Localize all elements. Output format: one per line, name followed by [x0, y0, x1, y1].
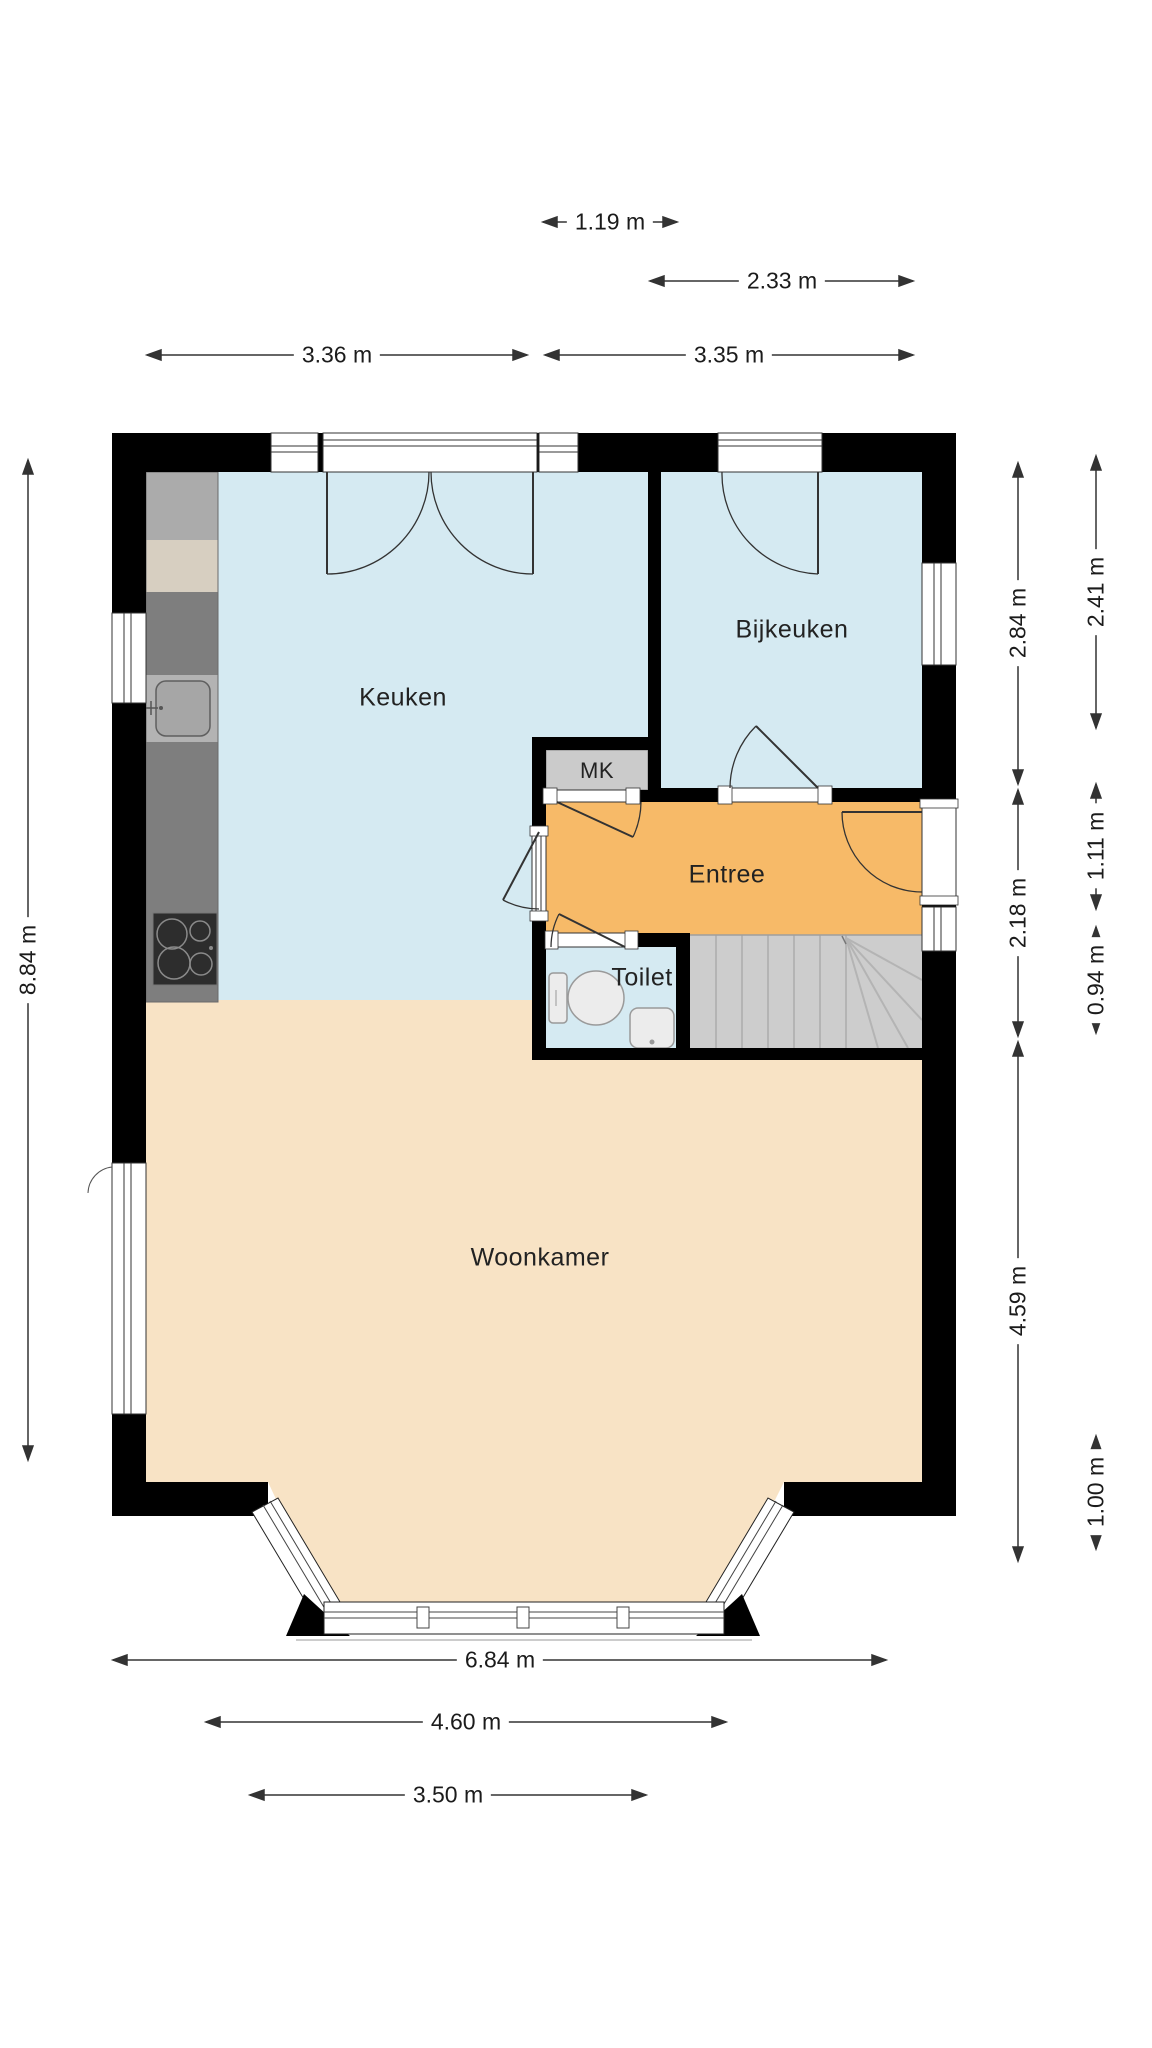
room-label-mk: MK — [580, 758, 614, 784]
floorplan-canvas: Keuken Bijkeuken MK Entree Toilet Woonka… — [0, 0, 1152, 2048]
dim-right-woonkamer: 4.59 m — [1005, 1258, 1032, 1344]
room-label-entree: Entree — [689, 861, 766, 890]
dim-top-bijkeuken: 3.35 m — [686, 342, 772, 369]
floorplan-drawing — [0, 0, 1152, 2048]
kitchen-counter — [144, 472, 218, 1002]
wall-toilet-stairs — [676, 933, 690, 1060]
wall-bay-stub-left — [112, 1482, 268, 1516]
room-label-woonkamer: Woonkamer — [471, 1244, 610, 1273]
dim-right-bay: 1.00 m — [1083, 1449, 1110, 1535]
room-label-keuken: Keuken — [359, 684, 447, 713]
wall-bay-stub-right — [784, 1482, 956, 1516]
window-top-left — [271, 433, 318, 472]
wall-bottom-hall — [532, 1048, 956, 1060]
wall-mk-top — [532, 737, 648, 750]
room-label-toilet: Toilet — [611, 964, 672, 993]
dim-top-small: 1.19 m — [567, 209, 653, 236]
toilet-tank — [549, 973, 567, 1023]
dim-right-bijkeuken-out: 2.41 m — [1083, 549, 1110, 635]
dim-left-total: 8.84 m — [15, 917, 42, 1003]
window-entree-sidelight — [922, 907, 956, 951]
dim-right-bijkeuken-in: 2.84 m — [1005, 580, 1032, 666]
dim-bottom-bay-window: 3.50 m — [405, 1782, 491, 1809]
cooktop — [153, 913, 217, 985]
dim-top-keuken: 3.36 m — [294, 342, 380, 369]
wall-keuken-bijkeuken — [648, 433, 661, 802]
dim-bottom-total: 6.84 m — [457, 1647, 543, 1674]
dim-right-hall: 2.18 m — [1005, 870, 1032, 956]
staircase — [690, 935, 922, 1048]
window-woonkamer-left — [88, 1163, 146, 1414]
window-bay-front — [296, 1602, 752, 1640]
dim-bottom-bay-opening: 4.60 m — [423, 1709, 509, 1736]
dim-right-entree: 1.11 m — [1083, 804, 1110, 889]
room-label-bijkeuken: Bijkeuken — [736, 616, 849, 645]
dim-top-mid: 2.33 m — [739, 268, 825, 295]
window-keuken-left — [112, 613, 146, 703]
window-top-right — [539, 433, 578, 472]
dim-right-toilet: 0.94 m — [1083, 937, 1110, 1023]
window-bijkeuken-right — [922, 563, 956, 665]
